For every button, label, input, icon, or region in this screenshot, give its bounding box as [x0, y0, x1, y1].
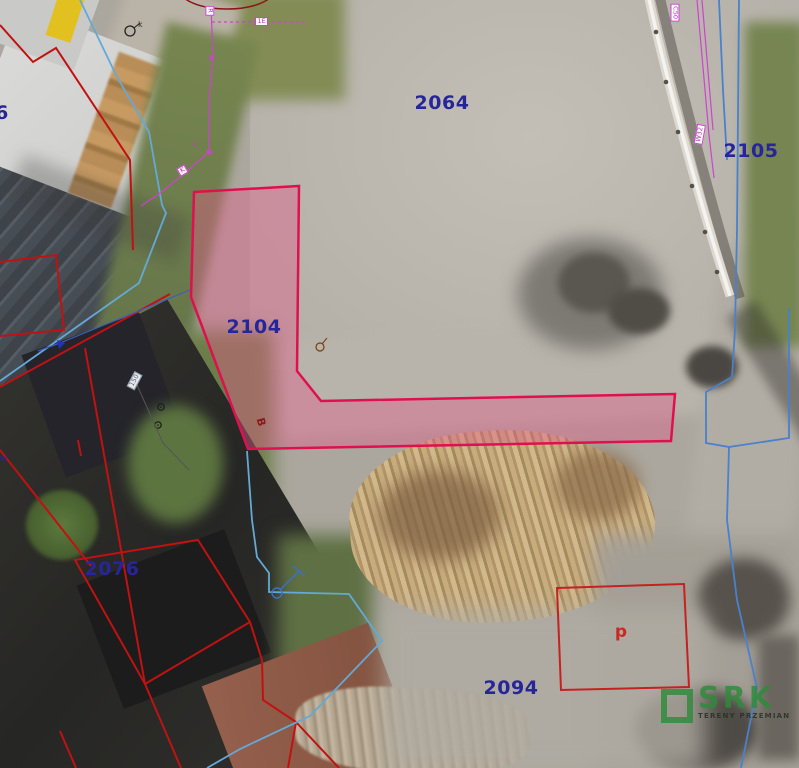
parcel-label-2094: 2094 [484, 677, 539, 699]
parcel-label-6: 6 [0, 102, 9, 124]
aerial-map: 2064 2104 2105 2076 2094 6 p B R 1E K W3… [0, 0, 799, 768]
label-layer: 2064 2104 2105 2076 2094 6 p B R 1E K W3… [0, 0, 799, 768]
survey-label-w: w [0, 455, 7, 464]
survey-label-c: c [193, 141, 197, 149]
srk-logo-text: SRK [698, 686, 790, 712]
annotation-p-label: p [615, 622, 627, 642]
survey-label-1e: 1E [255, 17, 268, 26]
srk-watermark-logo: SRK TERENY PRZEMIAN [661, 686, 790, 723]
parcel-label-2105: 2105 [724, 140, 779, 162]
annotation-b-label: B [254, 416, 269, 427]
survey-label-k-box: K [176, 164, 189, 177]
survey-label-r: R [205, 6, 214, 16]
parcel-label-2076: 2076 [85, 558, 140, 580]
srk-logo-tagline: TERENY PRZEMIAN [698, 712, 790, 720]
survey-label-k: k [138, 21, 143, 29]
srk-logo-square-icon [661, 689, 693, 723]
pipe-label-w32: W32 [694, 124, 706, 145]
dimension-label-150: 150 [127, 371, 143, 391]
srk-logo-text-block: SRK TERENY PRZEMIAN [698, 686, 790, 720]
parcel-label-2104: 2104 [227, 316, 282, 338]
pipe-label-c50: C50 [670, 4, 679, 22]
parcel-label-2064: 2064 [415, 92, 470, 114]
